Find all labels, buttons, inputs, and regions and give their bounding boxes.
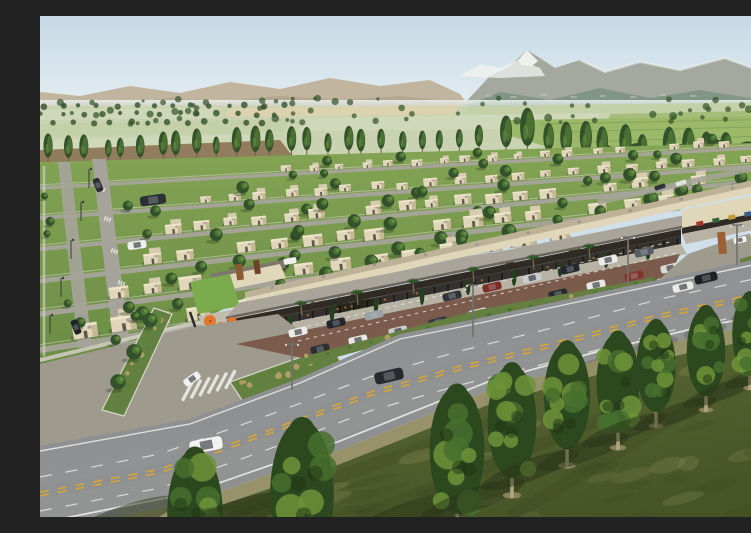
aerial-development-rendering xyxy=(40,16,751,517)
aerial-render-canvas xyxy=(40,16,751,517)
